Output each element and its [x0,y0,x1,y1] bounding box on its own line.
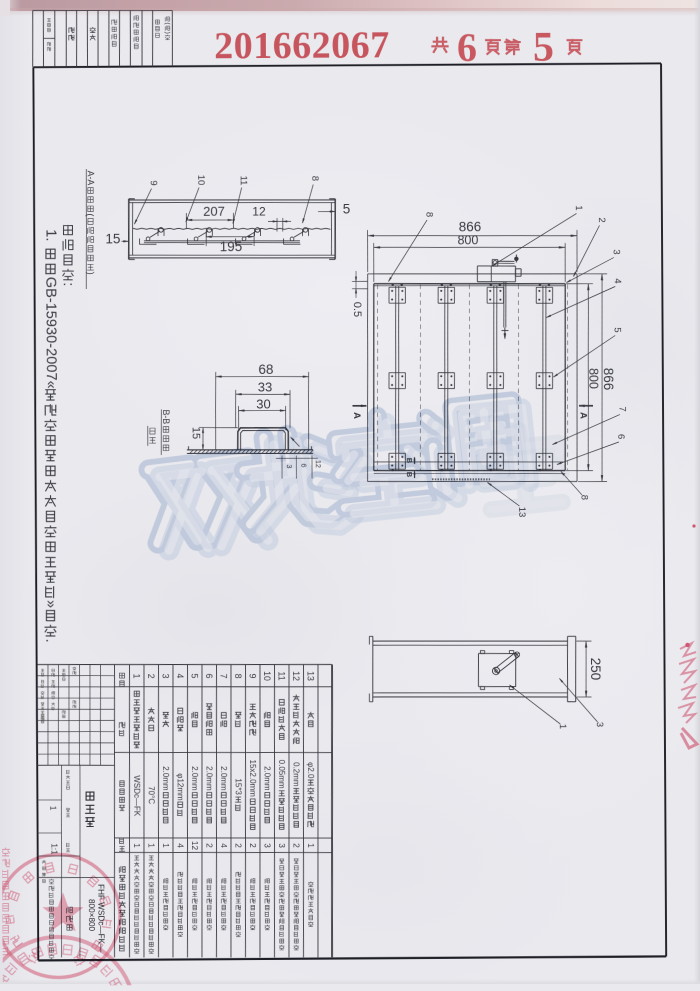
svg-text:WSDc—FK: WSDc—FK [132,775,141,817]
svg-text:10: 10 [262,671,272,681]
svg-text:30: 30 [256,396,271,411]
svg-text:3: 3 [161,673,171,678]
svg-text:10: 10 [195,175,206,186]
svg-text:): ) [86,272,96,275]
svg-text:8: 8 [423,212,434,217]
svg-text:5: 5 [612,327,623,332]
svg-text:9: 9 [148,180,159,185]
svg-text:1: 1 [161,843,170,848]
svg-text:2: 2 [234,843,243,848]
svg-text:12: 12 [190,841,199,851]
svg-text:1: 1 [573,205,584,210]
svg-text:15: 15 [105,231,120,246]
svg-text:): ) [164,32,171,34]
svg-text:1: 1 [132,674,142,679]
svg-text:B-B: B-B [161,410,171,425]
svg-text:11: 11 [277,671,287,680]
svg-text:68: 68 [258,362,273,377]
svg-text:7: 7 [616,406,627,411]
svg-text:6: 6 [204,674,214,679]
svg-text:15x2.0mm: 15x2.0mm [248,760,257,798]
svg-text:8: 8 [309,176,320,181]
svg-text:9: 9 [248,673,258,678]
svg-text:866: 866 [601,368,616,391]
svg-text:207: 207 [203,204,225,219]
svg-text:8: 8 [579,495,590,500]
svg-text:33: 33 [258,379,273,394]
svg-text:8: 8 [233,674,243,679]
svg-text:6: 6 [615,434,626,439]
svg-text:12: 12 [252,204,266,218]
svg-text:3: 3 [610,249,621,254]
svg-text:φ12mm: φ12mm [176,773,185,801]
svg-text:0.05mm: 0.05mm [277,760,286,789]
svg-text:2.0mm: 2.0mm [219,766,228,791]
svg-text:6: 6 [457,25,477,70]
svg-text:3: 3 [277,843,286,848]
svg-text:2: 2 [292,843,301,848]
svg-text:.: . [43,639,59,643]
svg-text:2.0mm: 2.0mm [190,766,199,791]
svg-text:11: 11 [238,176,249,186]
svg-text:3: 3 [263,843,272,848]
svg-text:15*3: 15*3 [234,778,243,795]
svg-text:1: 1 [306,843,315,848]
svg-text:0.2mm: 0.2mm [292,762,301,787]
svg-text:(: ( [164,22,171,25]
svg-text:5: 5 [190,674,200,679]
svg-text:70°C: 70°C [147,786,156,804]
svg-text:1: 1 [49,806,58,811]
svg-text:0.5: 0.5 [351,302,363,317]
svg-text:2: 2 [248,843,257,848]
svg-text:2: 2 [146,674,156,679]
svg-text:2: 2 [596,217,607,222]
svg-text:1: 1 [147,843,156,848]
svg-text:2: 2 [205,843,214,848]
svg-text:1: 1 [132,843,141,848]
svg-text:2.0mm: 2.0mm [263,766,272,791]
svg-text:4: 4 [175,673,185,678]
svg-text:A: A [351,412,362,419]
svg-text:201662067: 201662067 [214,24,390,67]
svg-text:2.0mm: 2.0mm [205,766,214,791]
svg-text:2.0mm: 2.0mm [161,766,170,791]
svg-text::: : [60,282,76,286]
svg-text:φ2.0: φ2.0 [306,762,315,779]
svg-text:195: 195 [220,239,243,254]
svg-text:13: 13 [306,671,316,681]
svg-text:12: 12 [291,671,301,681]
svg-text:1.: 1. [42,229,58,241]
svg-text:(: ( [85,213,95,216]
svg-text:4: 4 [219,843,228,848]
svg-text:5: 5 [343,201,351,216]
svg-text:1: 1 [557,724,568,729]
svg-text:250: 250 [588,658,603,681]
svg-text:4: 4 [176,843,185,848]
svg-text:3: 3 [594,722,605,727]
svg-text:800: 800 [457,233,478,247]
svg-text:800×800: 800×800 [87,899,96,932]
svg-text:A: A [577,412,588,419]
svg-text:FHF WSDc—FK—: FHF WSDc—FK— [96,884,105,953]
svg-text:7: 7 [219,674,229,679]
svg-text:15: 15 [189,427,201,439]
svg-text:5: 5 [533,25,554,71]
svg-text:»: » [43,600,59,608]
svg-text:A-A: A-A [86,171,96,186]
svg-text:GB-15930-2007«: GB-15930-2007« [42,277,59,389]
svg-text:4: 4 [612,278,623,283]
